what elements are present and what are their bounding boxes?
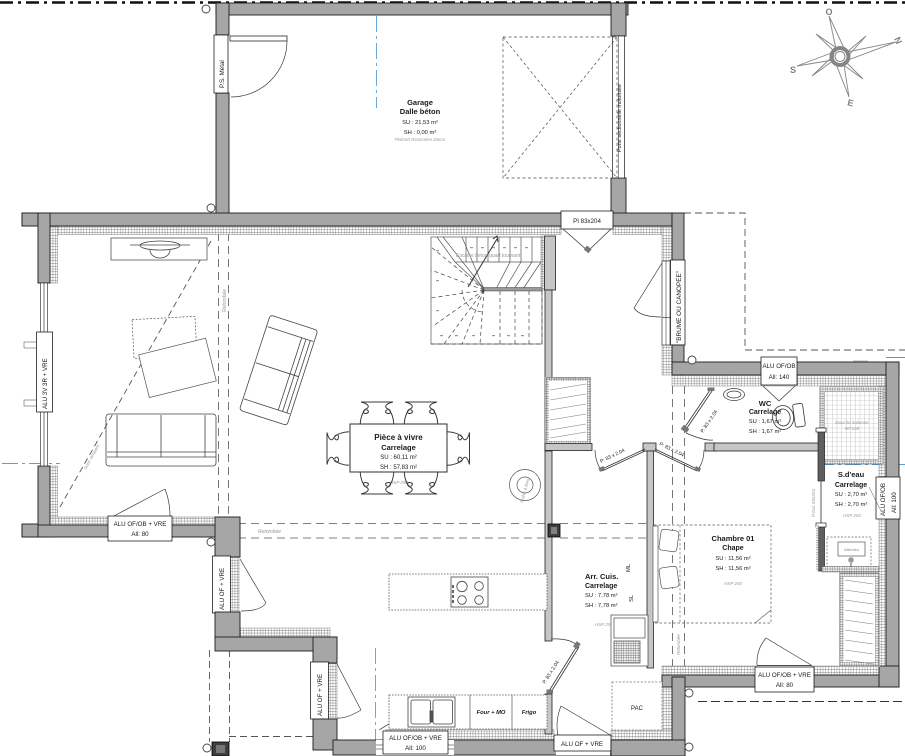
svg-text:SH : 0,00 m²: SH : 0,00 m²: [404, 130, 437, 136]
svg-text:ALU OF + VRE: ALU OF + VRE: [561, 741, 603, 748]
svg-text:HSP 250: HSP 250: [724, 581, 742, 586]
svg-text:SU : 21,53 m²: SU : 21,53 m²: [402, 120, 438, 126]
svg-text:Carrelage: Carrelage: [381, 443, 416, 452]
svg-text:Porte sectionnelle motorisée: Porte sectionnelle motorisée: [617, 84, 623, 152]
svg-text:ALU OF/OB: ALU OF/OB: [762, 363, 795, 370]
svg-text:S.d'eau: S.d'eau: [838, 470, 865, 479]
svg-text:Carrelage: Carrelage: [585, 583, 617, 590]
svg-text:Four + MO: Four + MO: [477, 710, 506, 716]
svg-text:SH : 1,67 m²: SH : 1,67 m²: [749, 429, 782, 435]
svg-text:PI 83x204: PI 83x204: [573, 218, 601, 225]
svg-text:SL: SL: [629, 594, 635, 602]
svg-text:P.Gal. 83x204: P.Gal. 83x204: [811, 489, 816, 517]
svg-text:Chape: Chape: [722, 545, 744, 552]
svg-text:S: S: [790, 65, 796, 75]
svg-text:PAC: PAC: [631, 706, 644, 712]
svg-text:Retombée: Retombée: [222, 289, 228, 312]
svg-text:All: 80: All: 80: [776, 682, 794, 689]
svg-text:Retombée: Retombée: [676, 634, 681, 655]
svg-text:SU : 60,11 m²: SU : 60,11 m²: [380, 455, 417, 461]
svg-text:Attentes: Attentes: [844, 547, 859, 552]
svg-text:Carrelage: Carrelage: [749, 409, 781, 416]
svg-text:SU : 2,70 m²: SU : 2,70 m²: [835, 492, 868, 498]
svg-text:ML: ML: [626, 563, 632, 572]
svg-text:SU : 11,56 m²: SU : 11,56 m²: [715, 556, 750, 562]
svg-text:WC: WC: [759, 399, 772, 408]
svg-text:Arr. Cuis.: Arr. Cuis.: [585, 572, 618, 581]
svg-text:ALU OF/OB: ALU OF/OB: [880, 483, 887, 516]
svg-text:ALU OF + VRE: ALU OF + VRE: [317, 674, 324, 716]
svg-text:HSP 250: HSP 250: [843, 513, 861, 518]
svg-text:SH : 11,56 m²: SH : 11,56 m²: [715, 566, 750, 572]
svg-text:Dalle béton: Dalle béton: [400, 107, 441, 116]
svg-text:Douche italienne: Douche italienne: [835, 420, 869, 425]
svg-text:SU : 7,78 m²: SU : 7,78 m²: [585, 593, 618, 599]
svg-text:All: 80: All: 80: [131, 531, 149, 538]
svg-text:All: 100: All: 100: [891, 492, 898, 513]
svg-text:ALU OF/OB + VRE: ALU OF/OB + VRE: [389, 735, 442, 742]
svg-text:P.S. Métal: P.S. Métal: [219, 60, 226, 88]
svg-text:Chambre 01: Chambre 01: [712, 534, 755, 543]
svg-text:ALU OF + VRE: ALU OF + VRE: [219, 568, 226, 610]
svg-text:All: 100: All: 100: [405, 745, 426, 752]
svg-text:ALU 3V 3R + VRE: ALU 3V 3R + VRE: [42, 358, 49, 409]
svg-text:"BRUME OU CANOPEE": "BRUME OU CANOPEE": [676, 271, 683, 343]
svg-text:SU : 1,67 m²: SU : 1,67 m²: [749, 419, 782, 425]
svg-text:ALU OF/OB + VRE: ALU OF/OB + VRE: [758, 672, 811, 679]
svg-text:SH : 57,83 m²: SH : 57,83 m²: [380, 465, 417, 471]
svg-text:ALU OF/OB + VRE: ALU OF/OB + VRE: [114, 521, 167, 528]
svg-text:Retombée: Retombée: [258, 529, 281, 535]
svg-text:Plafond Recticelen Decor: Plafond Recticelen Decor: [395, 137, 446, 142]
svg-text:SH : 2,70 m²: SH : 2,70 m²: [835, 502, 868, 508]
svg-text:90*100: 90*100: [845, 426, 860, 431]
svg-text:All: 140: All: 140: [769, 374, 790, 381]
svg-text:O: O: [825, 7, 832, 17]
svg-text:SH : 7,78 m²: SH : 7,78 m²: [585, 603, 618, 609]
svg-text:Frigo: Frigo: [522, 710, 537, 716]
svg-text:Garage: Garage: [407, 98, 433, 107]
svg-text:Carrelage: Carrelage: [835, 482, 867, 489]
svg-text:HSP 25: HSP 25: [595, 622, 611, 627]
svg-text:Pièce à vivre: Pièce à vivre: [374, 433, 423, 442]
svg-text:Escalier béton quart tournant: Escalier béton quart tournant: [456, 253, 521, 259]
